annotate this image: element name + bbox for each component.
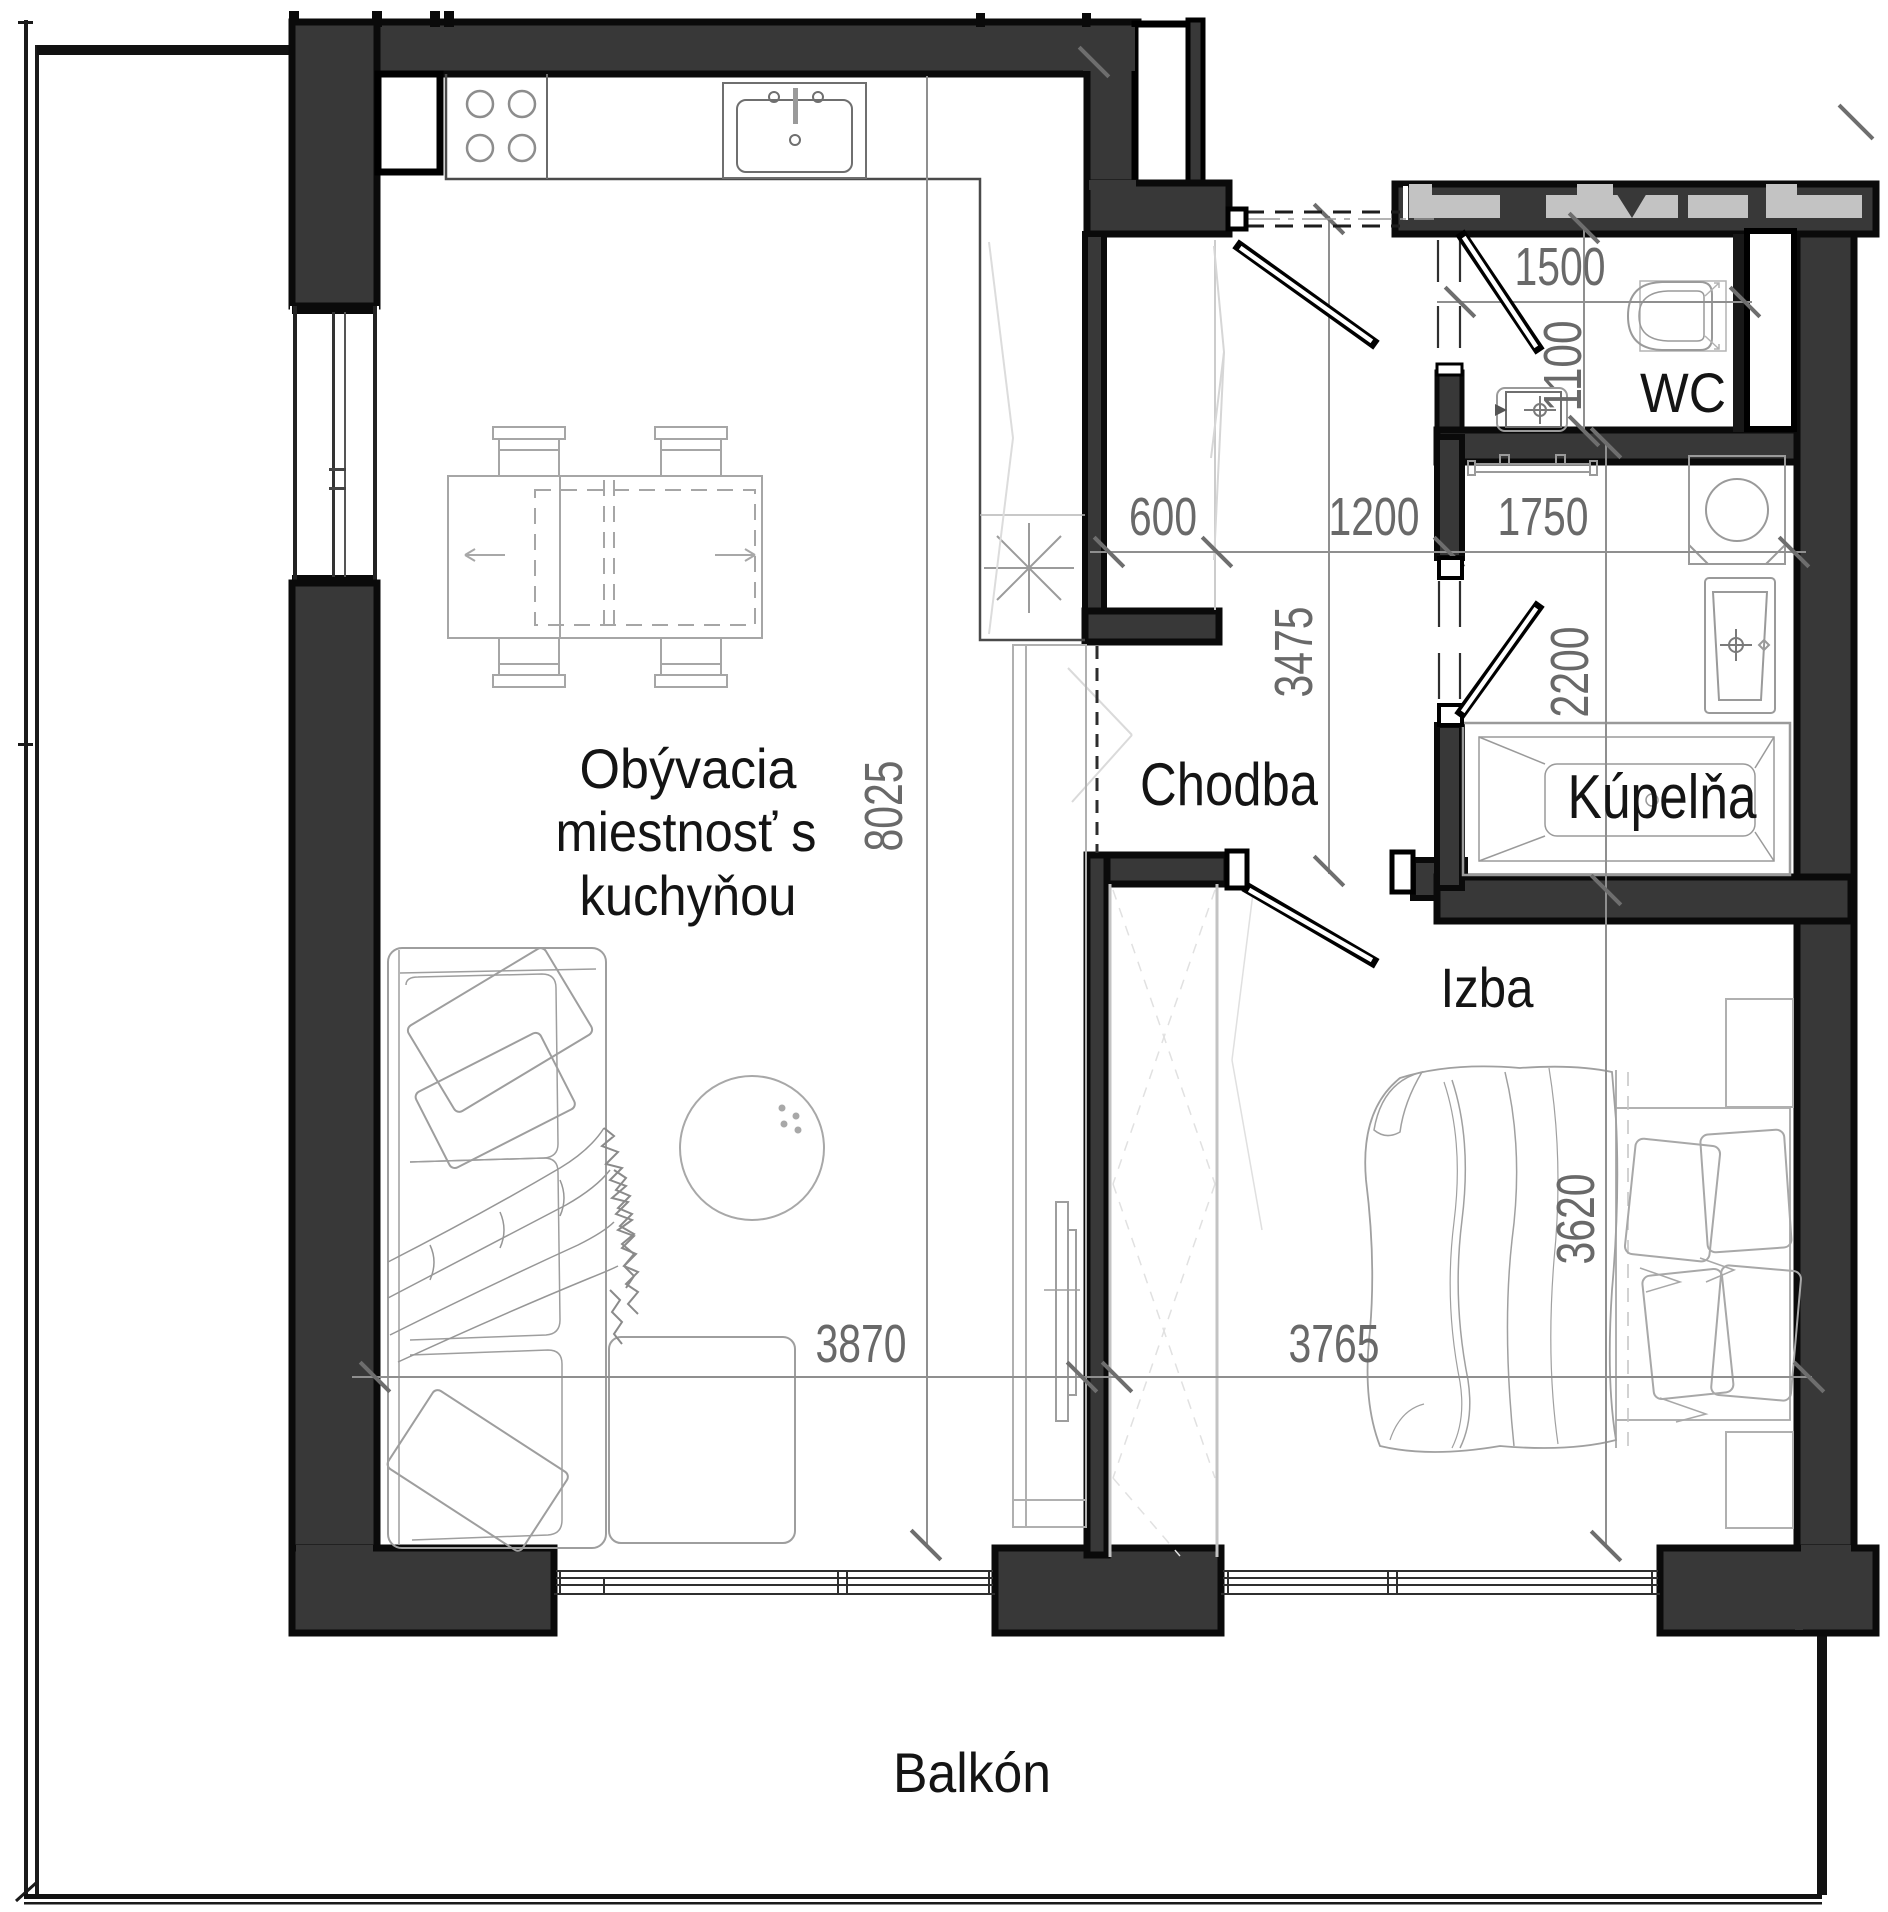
svg-text:3620: 3620	[1546, 1174, 1606, 1265]
svg-text:600: 600	[1129, 487, 1197, 547]
svg-text:miestnosť s: miestnosť s	[556, 800, 817, 863]
svg-text:Obývacia: Obývacia	[580, 737, 798, 800]
svg-text:kuchyňou: kuchyňou	[580, 864, 797, 927]
svg-text:Chodba: Chodba	[1140, 751, 1319, 818]
svg-text:WC: WC	[1640, 361, 1726, 424]
svg-text:1750: 1750	[1498, 487, 1589, 547]
svg-text:1200: 1200	[1329, 487, 1420, 547]
svg-text:Balkón: Balkón	[893, 1741, 1051, 1804]
svg-text:3870: 3870	[816, 1314, 907, 1374]
svg-text:2200: 2200	[1540, 627, 1600, 718]
svg-text:1100: 1100	[1533, 321, 1593, 412]
svg-text:1500: 1500	[1515, 237, 1606, 297]
svg-text:Izba: Izba	[1441, 956, 1535, 1019]
svg-text:3765: 3765	[1289, 1314, 1380, 1374]
svg-text:Kúpelňa: Kúpelňa	[1568, 763, 1757, 832]
svg-text:8025: 8025	[854, 761, 914, 852]
svg-text:3475: 3475	[1264, 607, 1324, 698]
